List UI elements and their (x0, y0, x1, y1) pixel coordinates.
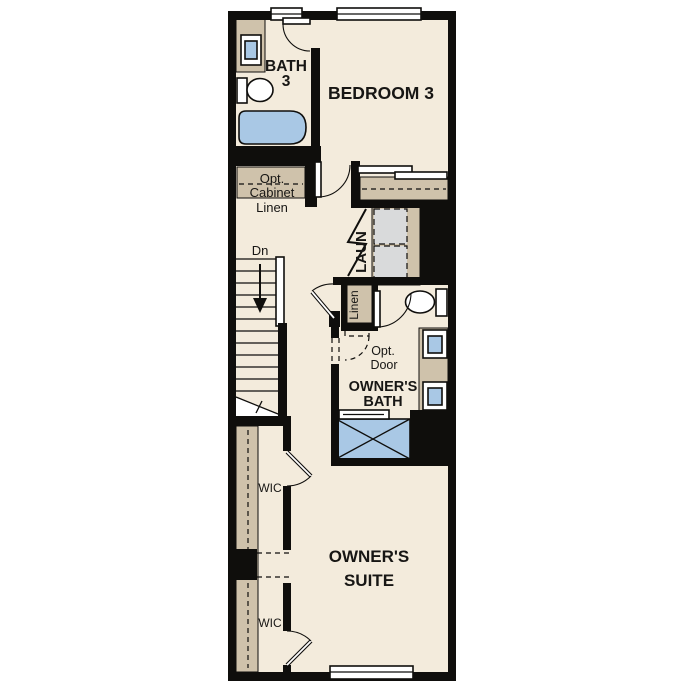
opt-door-label-line2: Door (370, 358, 397, 372)
washer (374, 209, 407, 244)
opt-cabinet-label-line2: Cabinet (250, 185, 295, 200)
owners-sink-1-basin (428, 336, 442, 353)
owners-bath-label-line2: BATH (363, 394, 402, 410)
wall-segment (283, 416, 291, 451)
bathtub (239, 111, 306, 144)
bath3-toilet-bowl (247, 79, 273, 102)
opt-door-label-line1: Opt. (371, 344, 395, 358)
wall-segment (331, 327, 339, 338)
bedroom3-door-leaf (315, 162, 321, 197)
wall-segment (420, 206, 456, 285)
owners-bath-door-leaf (374, 291, 380, 327)
closet-bypass-door-right (395, 172, 447, 179)
wall-segment (331, 458, 456, 466)
wic-upper-label: WIC (258, 481, 282, 495)
wall-segment (236, 146, 321, 166)
wall-segment (228, 11, 236, 681)
wall-segment (283, 583, 291, 631)
wall-segment (283, 665, 291, 674)
owners-bath-label-line1: OWNER'S (349, 379, 418, 395)
floor-plan-drawing: BATH 3 BEDROOM 3 Opt. Cabinet Linen Dn L… (0, 0, 687, 687)
owners-sink-2-basin (428, 388, 442, 405)
wall-segment (448, 11, 456, 681)
owners-toilet-tank (436, 289, 447, 316)
owners-suite-label-line2: SUITE (344, 571, 394, 590)
dryer (374, 246, 407, 281)
linen-lower-label: Linen (347, 290, 361, 319)
wall-segment (278, 323, 287, 418)
wall-segment (333, 277, 456, 285)
floor-plan-page: BATH 3 BEDROOM 3 Opt. Cabinet Linen Dn L… (0, 0, 687, 687)
owners-suite-label-line1: OWNER'S (329, 547, 410, 566)
opt-cabinet-label-line1: Opt. (260, 171, 285, 186)
wall-segment (236, 416, 283, 426)
bath3-door-leaf (283, 18, 310, 24)
linen-upper-label: Linen (256, 200, 288, 215)
wall-segment (283, 486, 291, 550)
bedroom3-label: BEDROOM 3 (328, 83, 434, 103)
wall-segment (311, 48, 320, 148)
bath3-sink-basin (245, 41, 257, 59)
bath3-toilet-tank (237, 78, 247, 103)
wic-lower-label: WIC (258, 616, 282, 630)
stair-railing (276, 257, 284, 326)
laundry-label: LAUN (353, 231, 370, 273)
structural-column (231, 549, 257, 580)
stairs-dn-label: Dn (252, 243, 269, 258)
wall-segment (331, 364, 339, 460)
wall-segment (410, 410, 456, 462)
bath3-label-line2: 3 (282, 73, 291, 90)
